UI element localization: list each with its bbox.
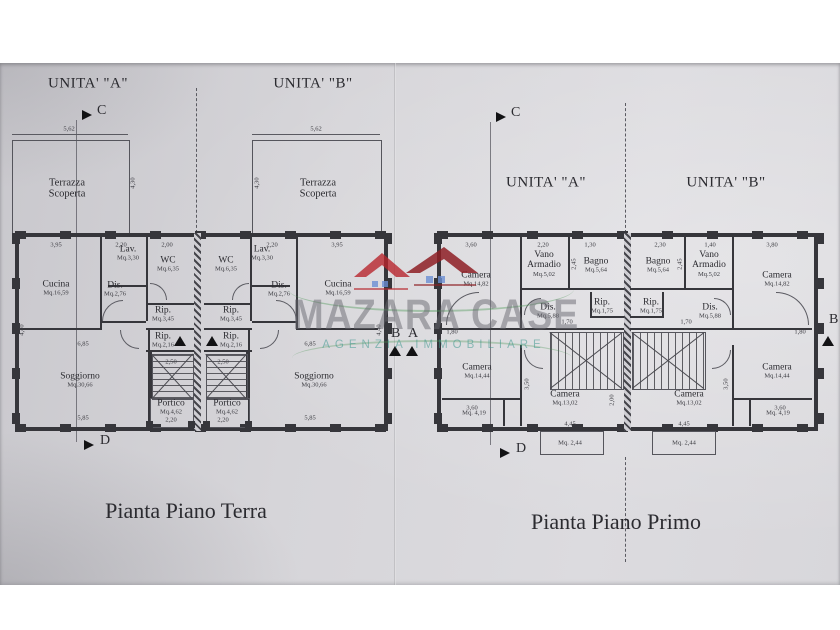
room-name: Camera [550,389,580,399]
dimension-label: 3,95 [50,242,61,249]
unit-b-title: UNITA' "B" [686,175,765,192]
room-name: Soggiorno [60,371,100,381]
section-arrow-icon [500,448,510,458]
room-name: Vano Armadio [685,250,733,271]
room-name: Bagno [584,256,609,266]
room-label: WCMq.6,35 [157,255,179,272]
wall [20,328,100,330]
dimension-label: 4,30 [130,177,137,188]
room-label: CameraMq.14,44 [762,362,792,379]
room-label: PorticoMq.4,62 [157,398,184,415]
room-label: PorticoMq.4,62 [213,398,240,415]
wall [590,316,624,318]
room-area: Mq.3,45 [152,316,174,323]
room-label: CameraMq.13,02 [674,389,704,406]
room-name: Rip. [152,305,174,315]
room-label: Dis.Mq.5,88 [699,302,721,319]
wall [100,321,146,323]
room-label: BagnoMq.5,64 [646,256,671,273]
room-label: SoggiornoMq.30,66 [60,371,100,388]
room-label: SoggiornoMq.30,66 [294,371,334,388]
dimension-label: 3,80 [766,242,777,249]
plan-title-primo: Pianta Piano Primo [531,509,701,535]
wall [204,328,252,330]
dimension-label: 1,40 [704,242,715,249]
room-label: Rip.Mq.3,45 [220,305,242,322]
wall [146,237,148,321]
room-name: Dis. [268,280,290,290]
unit-b-title: UNITA' "B" [273,76,352,93]
room-area: Mq.2,76 [104,291,126,298]
room-name: Portico [157,398,184,408]
dimension-label: 4,30 [254,177,261,188]
room-name: WC [215,255,237,265]
floor-plan-photo: UNITA' "A" UNITA' "B" C D [0,0,840,630]
room-name: Bagno [646,256,671,266]
room-label: Rip.Mq.1,75 [640,297,662,314]
dimension-label: 1,30 [584,242,595,249]
pillar [203,421,210,428]
pillar [245,421,252,428]
wall [662,292,664,318]
section-letter-c: C [511,105,520,121]
room-label: CucinaMq.16,59 [43,279,70,296]
dimension-label: 2,20 [217,417,228,424]
wall [814,233,818,431]
wall [204,350,252,352]
dimension-label: 3,50 [524,378,531,389]
room-label: Dis.Mq.2,76 [268,280,290,297]
room-area: Mq.14,44 [762,373,792,380]
unit-separation-dashed-line [625,103,626,233]
wall [630,328,734,330]
room-area: Mq.4,62 [157,409,184,416]
unit-a-title: UNITA' "A" [48,76,128,93]
wall [734,398,812,400]
wall [503,398,505,426]
room-area: Mq.1,75 [640,308,662,315]
room-label: CameraMq.13,02 [550,389,580,406]
room-label: Mq. 2,44 [672,439,696,446]
wall [146,350,194,352]
section-letter-c: C [97,103,106,119]
room-label: CameraMq.14,82 [762,270,792,287]
room-name: Vano Armadio [520,250,568,271]
watermark-brand-text: MAZARA CASE [293,290,576,340]
wall [684,288,734,290]
room-area: Mq. 2,44 [672,439,696,446]
room-area: Mq.3,30 [117,255,139,262]
room-name: Camera [762,362,792,372]
room-label: WCMq.6,35 [215,255,237,272]
unit-separation-dashed-line [196,88,197,233]
room-area: Mq. 2,44 [558,439,582,446]
room-name: Rip. [220,331,242,341]
room-label: BagnoMq.5,64 [584,256,609,273]
section-arrow-icon [84,440,94,450]
wall [630,288,684,290]
dimension-label: 2,20 [115,242,126,249]
room-area: Mq.6,35 [157,266,179,273]
dimension-label: 2,50 [217,359,228,366]
room-label: Mq. 2,44 [558,439,582,446]
room-name: Camera [762,270,792,280]
wall [252,321,298,323]
dimension-label: 3,95 [331,242,342,249]
section-arrow-icon [496,112,506,122]
section-letter-d: D [516,441,526,457]
room-area: Mq.6,35 [215,266,237,273]
room-label: Rip.Mq.2,16 [152,331,174,348]
dimension-label: 5,85 [77,415,88,422]
room-name: Rip. [152,331,174,341]
room-name: Rip. [220,305,242,315]
stair-direction-icon [174,336,186,346]
dimension-label: 5,85 [304,415,315,422]
room-name: Cucina [43,279,70,289]
room-label: Dis.Mq.2,76 [104,280,126,297]
room-name: Soggiorno [294,371,334,381]
section-letter-d: D [100,433,110,449]
party-wall [194,233,201,431]
wall [749,398,751,426]
party-wall [624,233,631,431]
room-area: Mq.2,76 [268,291,290,298]
room-area: Mq.2,16 [220,342,242,349]
room-name: Portico [213,398,240,408]
dimension-label: 4,45 [564,421,575,428]
dimension-label: 1,70 [680,319,691,326]
room-label: Vano ArmadioMq.5,02 [685,250,733,278]
stair-direction-icon [206,336,218,346]
watermark-tagline-text: AGENZIA IMMOBILIARE [300,339,568,351]
section-arrow-icon [82,110,92,120]
room-label: Rip.Mq.1,75 [591,297,613,314]
room-name: Rip. [591,297,613,307]
plan-title-terra: Pianta Piano Terra [105,498,267,524]
section-letter-b: B [829,312,838,328]
room-area: Mq.5,64 [584,267,609,274]
dimension-label: 4,40 [19,324,26,335]
room-label: Rip.Mq.2,16 [220,331,242,348]
dimension-label: 3,60 [466,405,477,412]
room-area: Mq.4,62 [213,409,240,416]
pillar [146,421,153,428]
wall [630,316,664,318]
room-name: Terrazza Scoperta [35,178,99,201]
pillar [188,421,195,428]
room-area: Mq.5,64 [646,267,671,274]
dimension-label: 5,62 [310,126,321,133]
wall [442,398,520,400]
room-name: Dis. [699,302,721,312]
room-area: Mq.30,66 [294,382,334,389]
room-label: Terrazza Scoperta [35,178,99,201]
room-name: WC [157,255,179,265]
wall [146,328,194,330]
dimension-label: 5,62 [63,126,74,133]
room-area: Mq.1,75 [591,308,613,315]
dimension-label: 2,45 [677,258,684,269]
dimension-label: 4,45 [678,421,689,428]
room-label: Rip.Mq.3,45 [152,305,174,322]
room-area: Mq.16,59 [43,290,70,297]
dimension-label: 2,00 [161,242,172,249]
room-area: Mq.2,16 [152,342,174,349]
dimension-label: 2,20 [165,417,176,424]
room-label: Terrazza Scoperta [286,178,350,201]
dimension-label: 2,50 [165,359,176,366]
dimension-label: 2,20 [266,242,277,249]
dimension-label: 2,30 [654,242,665,249]
room-name: Dis. [104,280,126,290]
room-name: Rip. [640,297,662,307]
wall [15,427,388,431]
room-area: Mq.30,66 [60,382,100,389]
room-area: Mq.5,88 [699,313,721,320]
dimension-line [12,134,128,135]
room-area: Mq.13,02 [550,400,580,407]
dimension-label: 1,80 [794,329,805,336]
room-area: Mq.13,02 [674,400,704,407]
dimension-label: 2,45 [571,258,578,269]
dimension-label: 3,60 [774,405,785,412]
dimension-label: 2,00 [609,394,616,405]
dimension-line [252,134,380,135]
dimension-label: 2,20 [537,242,548,249]
dimension-label: 3,50 [723,378,730,389]
wall [732,345,734,426]
room-area: Mq.14,82 [762,281,792,288]
dimension-label: 6,85 [77,341,88,348]
room-area: Mq.3,30 [251,255,273,262]
room-area: Mq.3,45 [220,316,242,323]
wall [15,233,388,237]
room-area: Mq.5,02 [685,271,733,278]
room-name: Camera [674,389,704,399]
room-name: Terrazza Scoperta [286,178,350,201]
unit-a-title: UNITA' "A" [506,175,586,192]
